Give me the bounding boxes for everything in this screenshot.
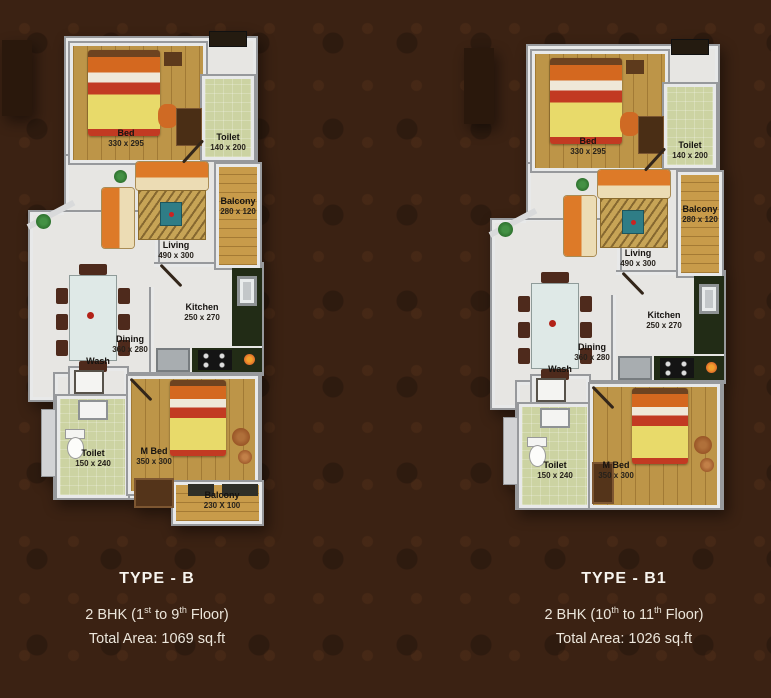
room-dims: 150 x 240 <box>537 471 573 481</box>
three-seat-sofa <box>598 170 670 198</box>
room-name: M Bed <box>136 446 172 457</box>
room-name: Balcony <box>682 204 718 215</box>
room-label-living: Living 490 x 300 <box>158 240 194 260</box>
room-label-master-bed: M Bed 350 x 300 <box>598 460 634 480</box>
dining-chair <box>118 314 130 330</box>
floors-text: 2 BHK (1 <box>85 607 144 623</box>
dining-chair <box>56 340 68 356</box>
bean-bag <box>694 436 712 454</box>
room-name: Bed <box>570 136 606 147</box>
dining-chair <box>580 322 592 338</box>
bean-bag <box>238 450 252 464</box>
room-label-dining: Dining 360 x 280 <box>574 342 610 362</box>
dresser <box>176 108 202 146</box>
room-name: Kitchen <box>184 302 220 313</box>
bean-bag <box>232 428 250 446</box>
room-name: Living <box>158 240 194 251</box>
dining-chair <box>518 322 530 338</box>
floors-text: 2 BHK (10 <box>544 607 611 623</box>
plan-title: TYPE - B1 <box>474 570 771 588</box>
plan-floors: 2 BHK (10th to 11th Floor) <box>474 605 771 623</box>
dining-chair <box>56 288 68 304</box>
caption-type-b: TYPE - B 2 BHK (1st to 9th Floor) Total … <box>7 570 307 647</box>
room-name: Kitchen <box>646 310 682 321</box>
kitchen-sink <box>237 276 257 306</box>
bedside-table <box>626 60 644 74</box>
armchair <box>620 112 640 136</box>
room-name: Toilet <box>75 448 111 459</box>
dining-table <box>532 284 578 368</box>
room-dims: 140 x 200 <box>672 151 708 161</box>
dining-chair <box>580 296 592 312</box>
exterior-step <box>42 410 57 476</box>
plant-icon <box>114 170 127 183</box>
room-label-kitchen: Kitchen 250 x 270 <box>646 310 682 330</box>
room-dims: 140 x 200 <box>210 143 246 153</box>
room-dims: 280 x 120 <box>220 207 256 217</box>
bedside-table <box>164 52 182 66</box>
caption-type-b1: TYPE - B1 2 BHK (10th to 11th Floor) Tot… <box>474 570 771 647</box>
toilet-tank <box>66 430 84 438</box>
room-dims: 330 x 295 <box>570 147 606 157</box>
exterior-step <box>504 418 519 484</box>
washing-machine <box>538 380 564 400</box>
exterior-wing-wall <box>464 48 494 124</box>
plant-icon <box>36 214 51 229</box>
dining-chair <box>79 264 107 275</box>
coffee-table <box>623 211 643 233</box>
room-label-wash: Wash <box>548 364 572 375</box>
room-name: Toilet <box>537 460 573 471</box>
stove <box>660 358 694 378</box>
room-name: Toilet <box>210 132 246 143</box>
room-dims: 250 x 270 <box>184 313 220 323</box>
exterior-wing-wall <box>2 40 32 116</box>
washing-machine <box>76 372 102 392</box>
room-dims: 350 x 300 <box>136 457 172 467</box>
room-label-bed: Bed 330 x 295 <box>108 128 144 148</box>
room-dims: 150 x 240 <box>75 459 111 469</box>
armchair <box>158 104 178 128</box>
two-seat-sofa <box>564 196 596 256</box>
room-name: Living <box>620 248 656 259</box>
room-dims: 230 X 100 <box>204 501 240 511</box>
room-name: Dining <box>112 334 148 345</box>
wardrobe <box>134 478 174 508</box>
plan-area: Total Area: 1026 sq.ft <box>474 631 771 647</box>
room-label-dining: Dining 360 x 280 <box>112 334 148 354</box>
dining-chair <box>518 348 530 364</box>
room-label-kitchen: Kitchen 250 x 270 <box>184 302 220 322</box>
bean-bag <box>700 458 714 472</box>
floorplan-type-b: Bed 330 x 295 Toilet 140 x 200 Balcony 2… <box>30 38 264 530</box>
floors-sup: th <box>654 605 662 615</box>
brochure-page: Bed 330 x 295 Toilet 140 x 200 Balcony 2… <box>0 0 771 698</box>
room-label-master-bed: M Bed 350 x 300 <box>136 446 172 466</box>
plan-floors: 2 BHK (1st to 9th Floor) <box>7 605 307 623</box>
room-label-toilet-bottom: Toilet 150 x 240 <box>537 460 573 480</box>
plan-title: TYPE - B <box>7 570 307 588</box>
floors-text: to 9 <box>151 607 179 623</box>
room-name: Bed <box>108 128 144 139</box>
room-dims: 350 x 300 <box>598 471 634 481</box>
fridge <box>156 348 190 372</box>
two-seat-sofa <box>102 188 134 248</box>
duct-box <box>672 40 708 54</box>
coffee-table <box>161 203 181 225</box>
master-double-bed <box>170 380 226 456</box>
room-label-balcony-right: Balcony 280 x 120 <box>682 204 718 224</box>
room-name: Wash <box>86 356 110 367</box>
double-bed <box>550 58 622 144</box>
floors-sup: th <box>179 605 187 615</box>
wash-basin <box>80 402 106 418</box>
toilet-tank <box>528 438 546 446</box>
room-label-toilet-top: Toilet 140 x 200 <box>672 140 708 160</box>
floors-text: Floor) <box>187 607 229 623</box>
fridge <box>618 356 652 380</box>
room-name: Dining <box>574 342 610 353</box>
stove <box>198 350 232 370</box>
room-name: Toilet <box>672 140 708 151</box>
room-dims: 330 x 295 <box>108 139 144 149</box>
room-dims: 360 x 280 <box>112 345 148 355</box>
room-label-balcony-bottom: Balcony 230 X 100 <box>204 490 240 510</box>
plan-area: Total Area: 1069 sq.ft <box>7 631 307 647</box>
dining-chair <box>56 314 68 330</box>
floors-text: Floor) <box>662 607 704 623</box>
dining-chair <box>118 288 130 304</box>
room-label-wash: Wash <box>86 356 110 367</box>
room-label-toilet-bottom: Toilet 150 x 240 <box>75 448 111 468</box>
kitchen-sink <box>699 284 719 314</box>
plant-icon <box>576 178 589 191</box>
room-dims: 490 x 300 <box>620 259 656 269</box>
room-name: M Bed <box>598 460 634 471</box>
room-dims: 250 x 270 <box>646 321 682 331</box>
double-bed <box>88 50 160 136</box>
duct-box <box>210 32 246 46</box>
room-label-balcony-right: Balcony 280 x 120 <box>220 196 256 216</box>
wash-basin <box>542 410 568 426</box>
room-dims: 280 x 120 <box>682 215 718 225</box>
three-seat-sofa <box>136 162 208 190</box>
dining-table <box>70 276 116 360</box>
floors-text: to 11 <box>619 607 654 623</box>
room-name: Balcony <box>204 490 240 501</box>
room-label-living: Living 490 x 300 <box>620 248 656 268</box>
plant-icon <box>498 222 513 237</box>
stool <box>706 362 717 373</box>
stool <box>244 354 255 365</box>
dining-chair <box>541 272 569 283</box>
room-dims: 360 x 280 <box>574 353 610 363</box>
floors-sup: th <box>611 605 619 615</box>
dresser <box>638 116 664 154</box>
floorplan-type-b1: Bed 330 x 295 Toilet 140 x 200 Balcony 2… <box>492 46 726 508</box>
room-label-toilet-top: Toilet 140 x 200 <box>210 132 246 152</box>
room-name: Wash <box>548 364 572 375</box>
master-double-bed <box>632 388 688 464</box>
room-label-bed: Bed 330 x 295 <box>570 136 606 156</box>
room-name: Balcony <box>220 196 256 207</box>
room-dims: 490 x 300 <box>158 251 194 261</box>
dining-chair <box>518 296 530 312</box>
